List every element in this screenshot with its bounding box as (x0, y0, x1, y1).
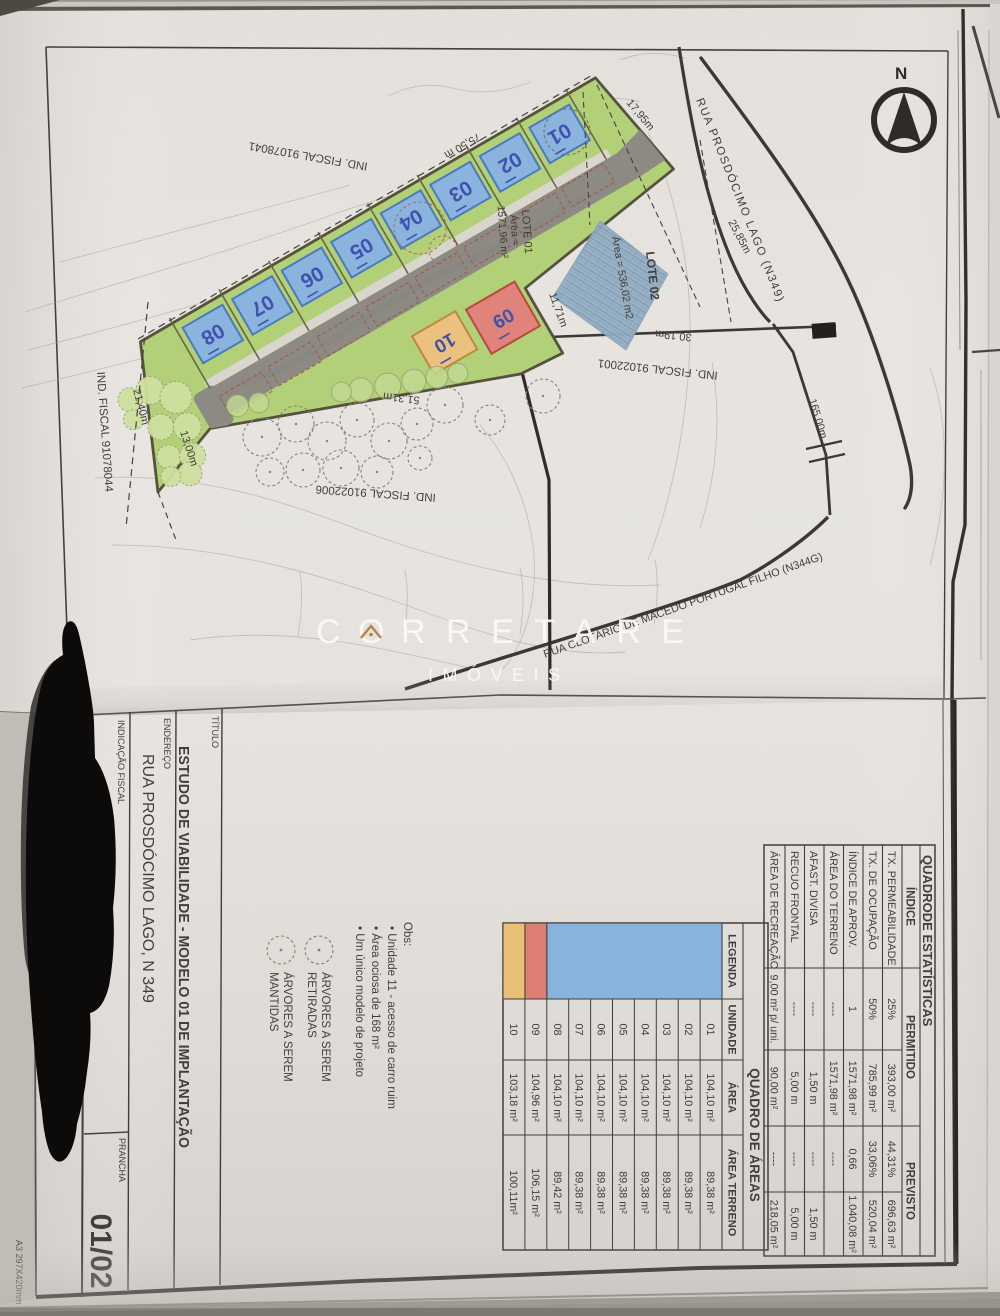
svg-text:104,10 m²: 104,10 m² (595, 1073, 607, 1122)
svg-text:89,38 m²: 89,38 m² (682, 1171, 694, 1214)
svg-text:89,38 m²: 89,38 m² (595, 1171, 607, 1214)
svg-text:100,11m²: 100,11m² (507, 1170, 519, 1215)
svg-text:09: 09 (529, 1023, 541, 1035)
svg-text:1571,98 m²: 1571,98 m² (846, 1061, 858, 1116)
svg-text:10: 10 (507, 1023, 519, 1035)
svg-text:UNIDADE: UNIDADE (725, 1004, 737, 1054)
svg-text:INDICAÇÃO FISCAL: INDICAÇÃO FISCAL (116, 720, 126, 804)
svg-text:ÁREA TERRENO: ÁREA TERRENO (725, 1149, 738, 1237)
svg-text:ENDEREÇO: ENDEREÇO (162, 718, 172, 769)
svg-text:06: 06 (595, 1023, 607, 1035)
svg-text:103,18 m²: 103,18 m² (507, 1073, 519, 1122)
svg-text:----: ---- (827, 1152, 839, 1167)
svg-text:89,42 m²: 89,42 m² (551, 1171, 563, 1214)
svg-text:----: ---- (788, 1152, 800, 1167)
svg-text:AFAST. DIVISA: AFAST. DIVISA (807, 851, 819, 926)
svg-text:ÁREA DE RECREAÇÃO: ÁREA DE RECREAÇÃO (768, 851, 781, 969)
svg-text:04: 04 (638, 1023, 650, 1035)
svg-text:1,50 m: 1,50 m (807, 1207, 819, 1240)
svg-text:25%: 25% (885, 998, 897, 1020)
svg-text:ÁREA: ÁREA (725, 1082, 738, 1113)
svg-text:ÍNDICE DE APROV.: ÍNDICE DE APROV. (846, 851, 859, 948)
svg-text:PERMITIDO: PERMITIDO (904, 1015, 916, 1079)
svg-text:MANTIDAS: MANTIDAS (267, 972, 279, 1032)
svg-text:104,10 m²: 104,10 m² (551, 1073, 563, 1122)
svg-text:05: 05 (616, 1023, 628, 1035)
svg-text:104,10 m²: 104,10 m² (638, 1073, 650, 1122)
svg-text:89,38 m²: 89,38 m² (704, 1171, 716, 1214)
svg-text:0,66: 0,66 (846, 1148, 858, 1169)
svg-text:C: C (316, 613, 341, 651)
svg-text:N: N (895, 64, 907, 83)
svg-text:9,00 m² p/ uni.: 9,00 m² p/ uni. (768, 974, 780, 1043)
svg-text:RUA PROSDÓCIMO LAGO, N 349: RUA PROSDÓCIMO LAGO, N 349 (139, 754, 158, 1003)
svg-text:Obs:: Obs: (401, 922, 413, 946)
svg-text:89,38 m²: 89,38 m² (660, 1171, 672, 1214)
svg-text:08: 08 (551, 1023, 563, 1035)
svg-text:02: 02 (682, 1023, 694, 1035)
svg-text:----: ---- (807, 1002, 819, 1017)
svg-text:QUADRODE ESTATÍSTICAS: QUADRODE ESTATÍSTICAS (920, 855, 935, 1027)
svg-text:1,50 m: 1,50 m (807, 1071, 819, 1104)
svg-text:106,15 m²: 106,15 m² (529, 1168, 541, 1217)
svg-text:O: O (358, 613, 384, 651)
svg-text:104,10 m²: 104,10 m² (682, 1073, 694, 1122)
svg-text:33,06%: 33,06% (866, 1141, 878, 1178)
svg-text:1571,98 m²: 1571,98 m² (827, 1061, 839, 1116)
svg-text:LEGENDA: LEGENDA (725, 934, 737, 988)
svg-text:ÁRVORES A SEREM: ÁRVORES A SEREM (319, 972, 332, 1082)
svg-text:• Unidade 11 - acesso de carro: • Unidade 11 - acesso de carro ruim (385, 926, 397, 1109)
svg-text:44,31%: 44,31% (885, 1141, 897, 1178)
svg-text:RECUO FRONTAL: RECUO FRONTAL (788, 851, 800, 943)
svg-text:104,10 m²: 104,10 m² (704, 1073, 716, 1122)
svg-text:104,10 m²: 104,10 m² (616, 1073, 628, 1122)
svg-text:TX. DE OCUPAÇÃO: TX. DE OCUPAÇÃO (866, 851, 879, 950)
svg-text:393,00 m²: 393,00 m² (885, 1064, 897, 1113)
svg-text:104,96 m²: 104,96 m² (529, 1073, 541, 1122)
svg-text:RETIRADAS: RETIRADAS (305, 972, 317, 1038)
svg-text:PRANCHA: PRANCHA (117, 1138, 127, 1182)
svg-text:• Um único modelo de projeto: • Um único modelo de projeto (353, 926, 365, 1077)
svg-text:03: 03 (660, 1023, 672, 1035)
svg-text:TÍTULO: TÍTULO (210, 716, 220, 748)
svg-text:89,38 m²: 89,38 m² (573, 1171, 585, 1214)
svg-text:5,00 m: 5,00 m (788, 1071, 800, 1104)
svg-text:TX. PERMEABILIDADE: TX. PERMEABILIDADE (885, 851, 897, 966)
svg-text:104,10 m²: 104,10 m² (660, 1073, 672, 1122)
svg-text:89,38 m²: 89,38 m² (638, 1171, 650, 1214)
svg-text:----: ---- (827, 1002, 839, 1017)
svg-text:• Área ociosa de 168 m²: • Área ociosa de 168 m² (369, 926, 382, 1049)
svg-text:IMÓVEIS: IMÓVEIS (428, 664, 570, 685)
svg-text:07: 07 (573, 1023, 585, 1035)
svg-text:----: ---- (768, 1152, 780, 1167)
svg-text:PREVISTO: PREVISTO (904, 1162, 916, 1220)
svg-text:ÍNDICE: ÍNDICE (904, 887, 917, 926)
svg-text:90,00 m²: 90,00 m² (768, 1067, 780, 1110)
svg-text:89,38 m²: 89,38 m² (616, 1171, 628, 1214)
svg-text:----: ---- (807, 1152, 819, 1167)
svg-text:ESTUDO DE VIABILIDADE - MODELO: ESTUDO DE VIABILIDADE - MODELO 01 DE IMP… (175, 746, 193, 1148)
svg-text:50%: 50% (866, 998, 878, 1020)
svg-text:104,10 m²: 104,10 m² (573, 1073, 585, 1122)
svg-text:QUADRO DE ÁREAS: QUADRO DE ÁREAS (747, 1068, 762, 1202)
svg-text:1: 1 (846, 1006, 858, 1012)
svg-text:RRETARE: RRETARE (401, 613, 704, 651)
svg-text:01: 01 (704, 1023, 716, 1035)
svg-text:ÁREA DO TERRENO: ÁREA DO TERRENO (827, 851, 840, 955)
svg-text:ÁRVORES A SEREM: ÁRVORES A SEREM (281, 972, 294, 1082)
svg-text:785,99 m²: 785,99 m² (866, 1064, 878, 1113)
svg-text:5,00 m: 5,00 m (788, 1207, 800, 1240)
svg-text:----: ---- (788, 1002, 800, 1017)
